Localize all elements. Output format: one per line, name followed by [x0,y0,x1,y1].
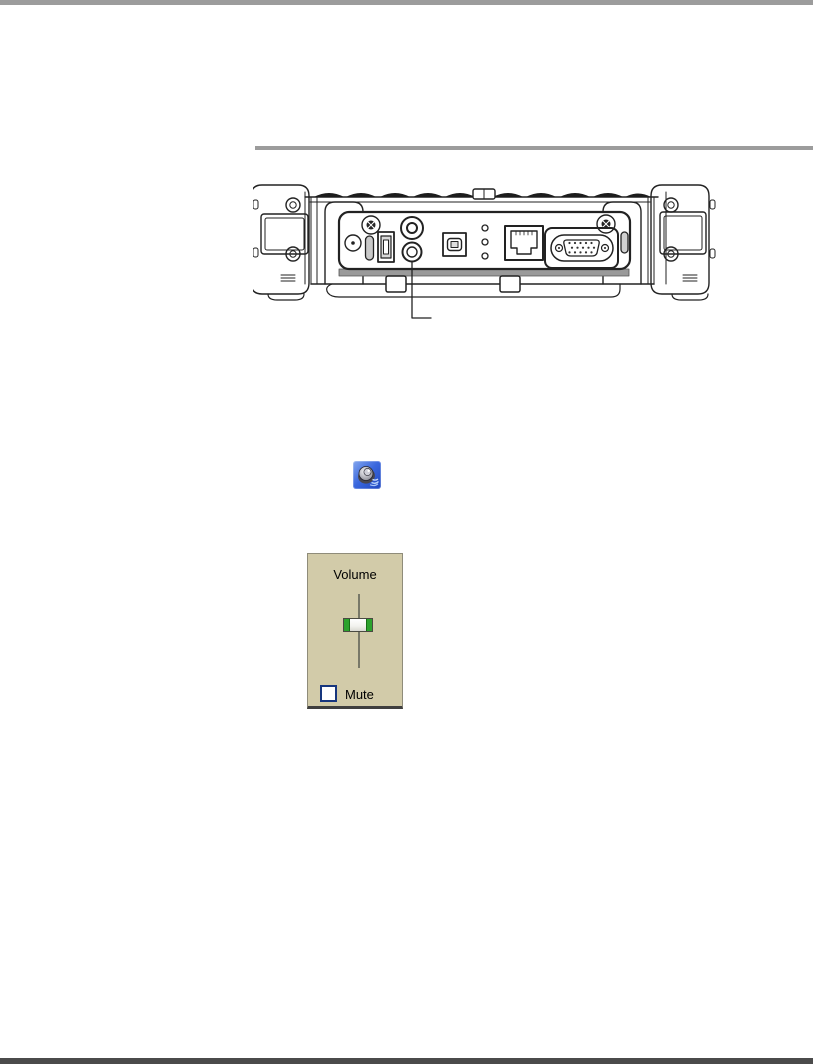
left-bumper [253,185,309,300]
usb-port [378,232,394,262]
device-port-drawing [253,172,723,337]
thumb-left-cap [344,619,350,631]
volume-title: Volume [308,567,402,582]
page-top-rule [0,0,813,5]
volume-tray-icon[interactable] [353,461,381,489]
latch-tab-left [386,276,406,292]
device-port-figure [253,172,723,337]
manual-page: { "page": { "background": "#ffffff", "to… [0,0,813,1064]
thumb-right-cap [366,619,372,631]
speaker-icon [353,461,381,489]
mute-checkbox[interactable] [320,685,337,702]
right-bumper [651,185,715,300]
section-divider-rule [255,146,813,150]
under-tray [327,284,620,297]
mute-label: Mute [345,687,374,702]
volume-slider-thumb[interactable] [343,618,373,632]
panel-screw-right [597,215,615,233]
page-bottom-rule [0,1058,813,1064]
slot [366,236,374,260]
volume-control-panel: Volume Mute [307,553,403,709]
latch-tab-right [500,276,520,292]
panel-latch-slot [621,232,628,253]
